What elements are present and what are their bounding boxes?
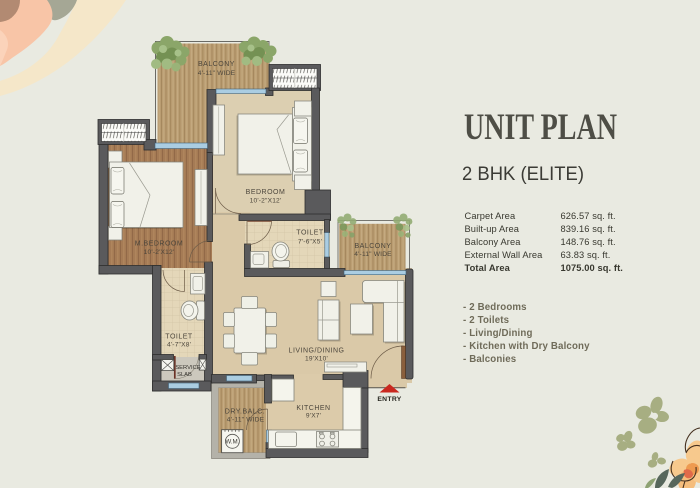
svg-text:9'X7': 9'X7' xyxy=(306,413,321,420)
svg-text:4'-7"X8': 4'-7"X8' xyxy=(167,342,191,349)
svg-text:10'-2'X12': 10'-2'X12' xyxy=(144,249,175,256)
svg-text:TOILET: TOILET xyxy=(165,334,193,341)
svg-text:Balcony Area: Balcony Area xyxy=(465,237,522,247)
svg-text:LIVING/DINING: LIVING/DINING xyxy=(289,348,345,355)
svg-text:1075.00 sq. ft.: 1075.00 sq. ft. xyxy=(561,263,623,273)
svg-text:BEDROOM: BEDROOM xyxy=(246,189,286,196)
svg-text:7'-6"X5': 7'-6"X5' xyxy=(298,239,322,246)
svg-text:- Balconies: - Balconies xyxy=(463,354,516,365)
svg-text:4'-11" WIDE: 4'-11" WIDE xyxy=(227,417,265,424)
svg-text:4'-11" WIDE: 4'-11" WIDE xyxy=(354,251,392,258)
svg-text:19'X10': 19'X10' xyxy=(305,356,328,363)
svg-text:SLAB: SLAB xyxy=(177,372,192,378)
svg-text:UNIT PLAN: UNIT PLAN xyxy=(464,106,617,147)
svg-text:839.16 sq. ft.: 839.16 sq. ft. xyxy=(561,224,616,234)
svg-text:2 BHK (ELITE): 2 BHK (ELITE) xyxy=(462,164,584,185)
svg-text:KITCHEN: KITCHEN xyxy=(296,405,330,412)
svg-text:148.76 sq. ft.: 148.76 sq. ft. xyxy=(561,237,616,247)
svg-text:TOILET: TOILET xyxy=(296,230,324,237)
svg-text:626.57 sq. ft.: 626.57 sq. ft. xyxy=(561,211,616,221)
svg-text:SERVICE: SERVICE xyxy=(175,365,200,371)
svg-text:4'-11" WIDE: 4'-11" WIDE xyxy=(198,70,236,77)
svg-text:External Wall Area: External Wall Area xyxy=(465,250,544,260)
svg-text:63.83 sq. ft.: 63.83 sq. ft. xyxy=(561,250,611,260)
svg-text:10'-2"X12': 10'-2"X12' xyxy=(250,198,282,205)
svg-text:DRY.BALC.: DRY.BALC. xyxy=(225,409,265,416)
svg-text:Total Area: Total Area xyxy=(465,263,511,273)
svg-text:W.M.: W.M. xyxy=(225,439,239,446)
svg-text:- Kitchen with Dry Balcony: - Kitchen with Dry Balcony xyxy=(463,341,590,352)
svg-text:Carpet Area: Carpet Area xyxy=(465,211,516,221)
svg-text:ENTRY: ENTRY xyxy=(377,396,401,403)
svg-text:- Living/Dining: - Living/Dining xyxy=(463,328,533,339)
svg-text:M.BEDROOM: M.BEDROOM xyxy=(135,241,183,248)
svg-text:- 2 Toilets: - 2 Toilets xyxy=(463,315,509,326)
svg-text:Built-up Area: Built-up Area xyxy=(465,224,520,234)
svg-text:- 2 Bedrooms: - 2 Bedrooms xyxy=(463,302,527,313)
svg-text:BALCONY: BALCONY xyxy=(355,243,392,250)
svg-text:BALCONY: BALCONY xyxy=(198,61,235,68)
